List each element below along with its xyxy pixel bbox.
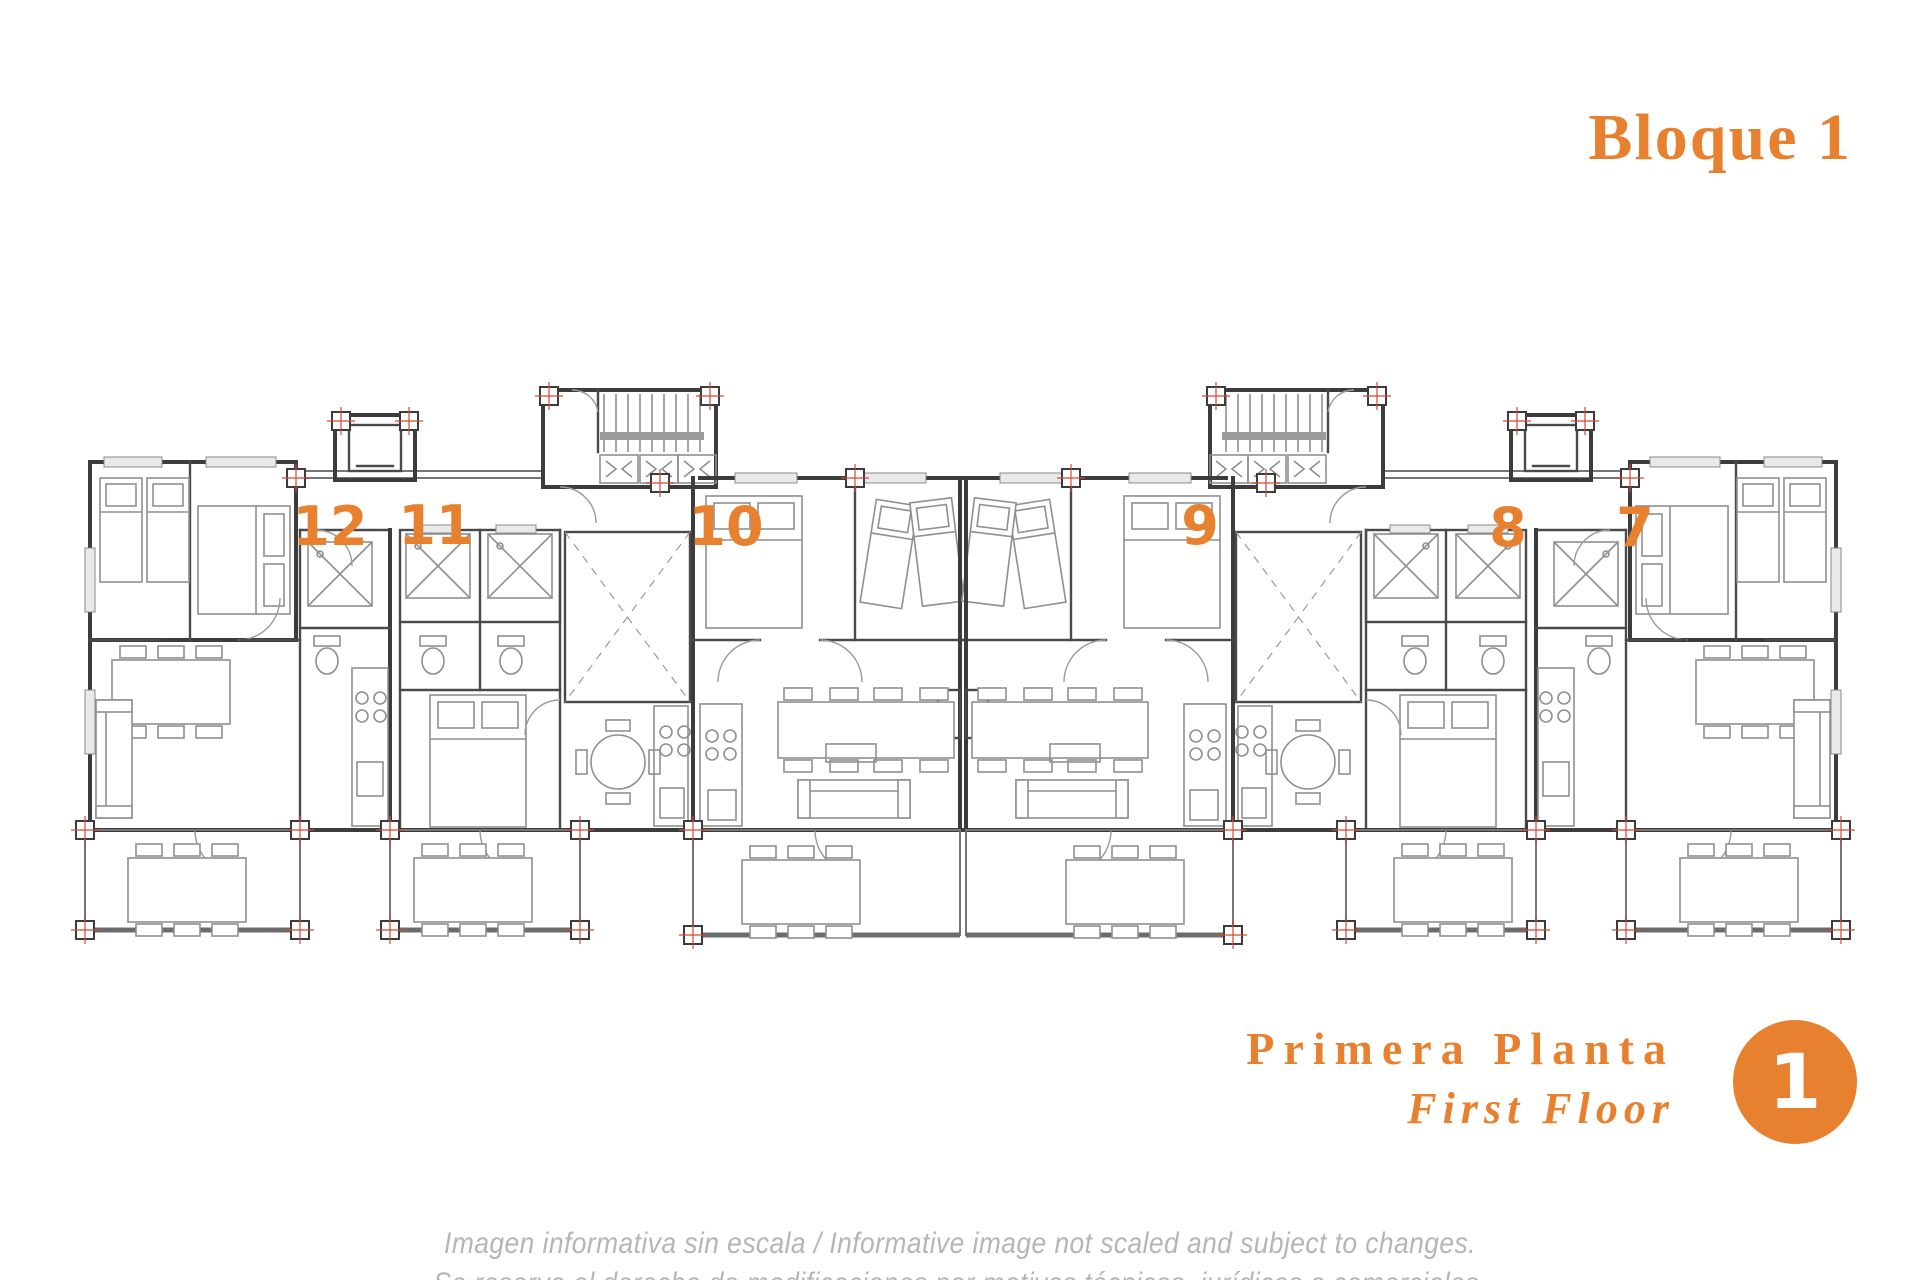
apartment-label-7: 7: [1616, 501, 1654, 555]
brochure-page: Bloque 1 12 11 10 9 8 7 Primera Planta F…: [0, 0, 1920, 1280]
floor-name-spanish: Primera Planta: [1246, 1022, 1675, 1075]
disclaimer: Imagen informativa sin escala / Informat…: [344, 1224, 1576, 1280]
apartment-label-8: 8: [1489, 501, 1527, 555]
floor-badge: 1: [1733, 1020, 1857, 1144]
apartment-label-9: 9: [1181, 499, 1219, 553]
floor-label: Primera Planta First Floor: [1246, 1022, 1675, 1134]
disclaimer-line-1: Imagen informativa sin escala / Informat…: [344, 1224, 1576, 1264]
floor-name-english: First Floor: [1246, 1083, 1675, 1134]
apartment-label-11: 11: [398, 499, 473, 553]
apartment-label-12: 12: [292, 500, 367, 554]
floor-badge-number: 1: [1769, 1044, 1822, 1120]
disclaimer-line-2: Se reserva el derecho de modificaciones …: [344, 1264, 1576, 1280]
apartment-label-10: 10: [688, 500, 763, 554]
page-title: Bloque 1: [1588, 100, 1852, 176]
